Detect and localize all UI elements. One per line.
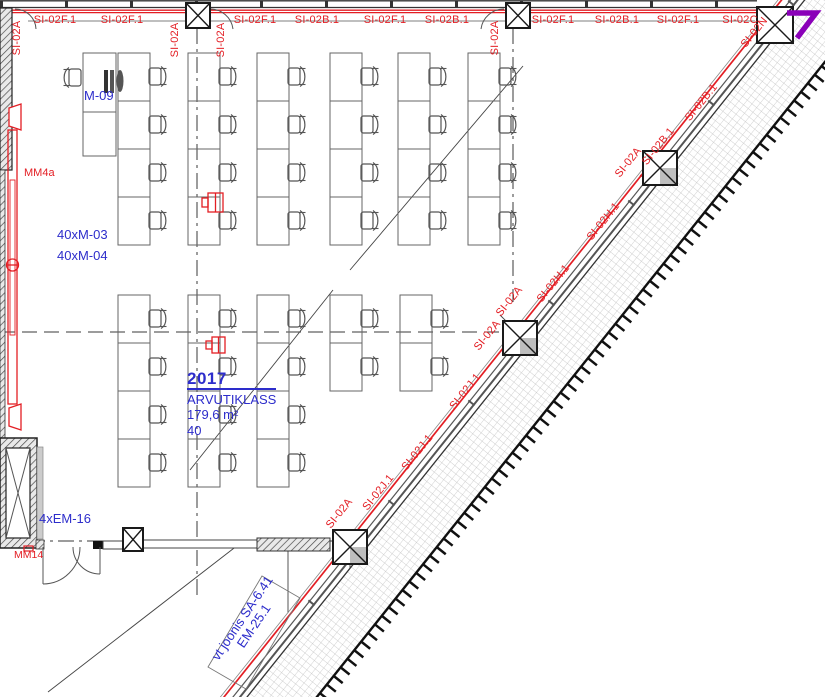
student-chair	[361, 115, 379, 135]
duct-label: SI-02F.1	[532, 15, 575, 27]
desk	[330, 101, 362, 149]
tables-label: 40xM-03	[57, 228, 108, 242]
desk	[398, 53, 430, 101]
desk	[257, 197, 289, 245]
room-capacity: 40	[187, 424, 276, 438]
desk	[257, 439, 289, 487]
student-chair	[219, 309, 237, 329]
student-chair	[149, 309, 167, 329]
column-on-diagonal	[503, 321, 537, 355]
student-chair	[288, 453, 306, 473]
room-stamp: 2017 ARVUTIKLASS 179,6 m² 40	[187, 370, 276, 438]
teacher-chair	[64, 68, 82, 88]
speaker-symbol	[9, 104, 21, 130]
desk	[468, 149, 500, 197]
chairs-label: 40xM-04	[57, 249, 108, 263]
student-chair	[429, 211, 447, 231]
duct-label: SI-02F.1	[34, 15, 77, 27]
desk	[257, 101, 289, 149]
student-chair	[288, 67, 306, 87]
desk	[188, 149, 220, 197]
desk	[188, 295, 220, 343]
desk	[118, 439, 150, 487]
student-chair	[288, 357, 306, 377]
student-chair	[431, 309, 449, 329]
desk	[468, 53, 500, 101]
desk	[188, 439, 220, 487]
student-chair	[361, 163, 379, 183]
desk	[468, 197, 500, 245]
student-chair	[499, 211, 517, 231]
desk	[257, 53, 289, 101]
desk	[118, 197, 150, 245]
student-chair	[288, 163, 306, 183]
duct-label-vertical: SI-02A	[12, 21, 24, 56]
student-chair	[288, 115, 306, 135]
desk	[118, 343, 150, 391]
desk	[400, 343, 432, 391]
student-chair	[429, 67, 447, 87]
student-chair	[149, 211, 167, 231]
duct-label: SI-02B.1	[295, 15, 339, 27]
room-area: 179,6 m²	[187, 408, 276, 422]
desk	[118, 101, 150, 149]
desk	[330, 343, 362, 391]
room-number: 2017	[187, 370, 276, 390]
speaker-symbol	[9, 404, 21, 430]
door-arc	[73, 547, 100, 574]
student-chair	[429, 163, 447, 183]
student-chair	[499, 115, 517, 135]
desk	[188, 53, 220, 101]
elevator-shaft	[0, 438, 43, 551]
desk	[398, 149, 430, 197]
student-chair	[361, 211, 379, 231]
student-chair	[219, 115, 237, 135]
student-chair	[149, 453, 167, 473]
column-on-diagonal	[333, 530, 367, 564]
duct-label: SI-02F.1	[234, 15, 277, 27]
student-chair	[219, 163, 237, 183]
desk	[188, 101, 220, 149]
student-chair	[219, 67, 237, 87]
student-chair	[149, 405, 167, 425]
student-chair	[288, 405, 306, 425]
desk	[118, 295, 150, 343]
desk	[330, 149, 362, 197]
student-chair	[219, 211, 237, 231]
desk	[118, 391, 150, 439]
junction-box	[206, 337, 225, 353]
desk	[257, 149, 289, 197]
desk	[330, 197, 362, 245]
student-chair	[149, 163, 167, 183]
duct-label-vertical: SI-02A	[216, 23, 228, 58]
desk	[398, 197, 430, 245]
duct-label: SI-02F.1	[657, 15, 700, 27]
desk	[257, 295, 289, 343]
duct-label: SI-02F.1	[364, 15, 407, 27]
room-name: ARVUTIKLASS	[187, 393, 276, 407]
student-chair	[288, 211, 306, 231]
duct-label-vertical: SI-02A	[490, 21, 502, 56]
duct-label: SI-02B.1	[425, 15, 469, 27]
student-chair	[149, 357, 167, 377]
student-chair	[149, 67, 167, 87]
duct-label-vertical: SI-02A	[170, 23, 182, 58]
duct-label: SI-02B.1	[595, 15, 639, 27]
desk	[398, 101, 430, 149]
desk	[330, 295, 362, 343]
desk-grid	[118, 53, 517, 487]
student-chair	[219, 453, 237, 473]
electrical-label: 4xEM-16	[39, 512, 91, 526]
floor-plan: SI-02F.1 SI-02F.1 SI-02F.1 SI-02B.1 SI-0…	[0, 0, 825, 697]
student-chair	[149, 115, 167, 135]
student-chair	[431, 357, 449, 377]
junction-label: MM4a	[24, 168, 55, 180]
desk	[330, 53, 362, 101]
door-arc	[43, 547, 80, 584]
speaker-icon	[117, 70, 124, 92]
student-chair	[429, 115, 447, 135]
student-chair	[361, 67, 379, 87]
student-chair	[288, 309, 306, 329]
teacher-station-label: M-09	[84, 89, 114, 103]
student-chair	[499, 163, 517, 183]
desk	[118, 149, 150, 197]
desk	[400, 295, 432, 343]
student-chair	[361, 357, 379, 377]
duct-label: SI-02F.1	[101, 15, 144, 27]
cable-riser	[8, 130, 17, 404]
teacher-workstation	[64, 53, 124, 156]
junction-label: MM14	[14, 550, 43, 561]
student-chair	[361, 309, 379, 329]
